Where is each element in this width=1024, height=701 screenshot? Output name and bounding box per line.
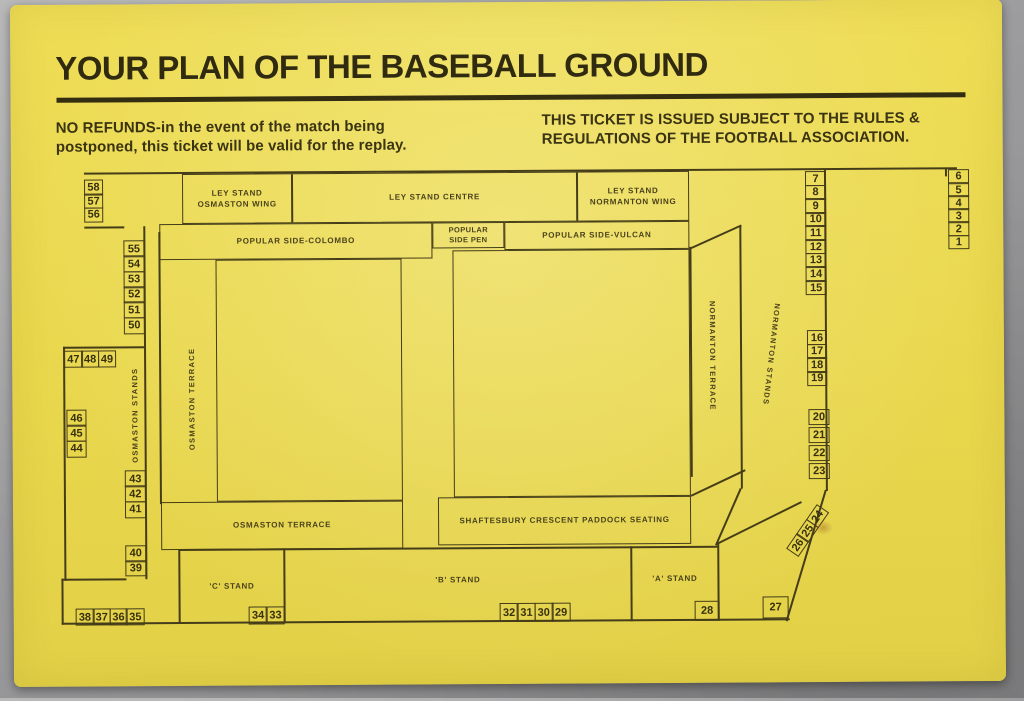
label-ley-stand-centre: LEY STAND CENTRE	[292, 172, 577, 224]
gate-27: 27	[763, 596, 789, 618]
page-title: YOUR PLAN OF THE BASEBALL GROUND	[55, 46, 708, 88]
gates-40-39: 4039	[125, 545, 146, 576]
ticket-card: YOUR PLAN OF THE BASEBALL GROUND NO REFU…	[10, 0, 1006, 687]
gate-21: 21	[809, 427, 830, 443]
gate-22: 22	[809, 445, 830, 461]
gates-46-44: 464544	[66, 410, 86, 458]
gate-47: 47	[64, 351, 83, 368]
boundary-line	[61, 578, 126, 580]
pitch-right	[452, 249, 691, 497]
label-popular-side-vulcan: POPULAR SIDE-VULCAN	[504, 221, 689, 250]
gate-37: 37	[92, 608, 111, 625]
label-popular-side-colombo: POPULAR SIDE-COLOMBO	[159, 222, 432, 260]
gate-33: 33	[266, 606, 285, 624]
gates-20-23: 20212223	[808, 409, 829, 479]
gates-55-50: 555453525150	[123, 240, 145, 334]
boundary-line	[61, 579, 63, 625]
gate-31: 31	[517, 603, 536, 622]
boundary-line	[158, 232, 161, 504]
title-rule	[56, 92, 965, 103]
gate-38: 38	[76, 609, 95, 626]
boundary-line	[84, 226, 124, 228]
gate-23: 23	[809, 463, 830, 479]
stands-band-bottom-line	[62, 618, 790, 624]
label-osmaston-terrace-side: OSMASTON TERRACE	[185, 344, 198, 454]
paper-stain	[813, 520, 833, 535]
gates-32-29: 32313029	[500, 603, 571, 622]
gate-48: 48	[81, 350, 100, 367]
gate-19: 19	[807, 371, 827, 386]
gate-56: 56	[84, 207, 103, 223]
gate-34: 34	[249, 606, 268, 624]
photo-background: { "header": { "title": "YOUR PLAN OF THE…	[0, 0, 1024, 698]
gate-1: 1	[948, 235, 969, 250]
boundary-diagonal	[717, 501, 802, 544]
gate-29: 29	[552, 603, 571, 622]
gate-20: 20	[808, 409, 829, 425]
boundary-line	[63, 347, 66, 581]
boundary-line	[63, 346, 145, 348]
gate-44: 44	[67, 440, 87, 457]
gates-43-41: 434241	[125, 470, 146, 518]
refund-notice: NO REFUNDS-in the event of the match bei…	[56, 116, 516, 157]
boundary-line	[739, 226, 742, 489]
gate-50: 50	[124, 317, 145, 334]
label-ley-stand-osmaston-wing: LEY STAND OSMASTON WING	[182, 173, 292, 224]
label-normanton-terrace: NORMANTON TERRACE	[707, 296, 720, 416]
boundary-diagonal	[689, 224, 742, 249]
gates-6-1: 654321	[948, 169, 969, 249]
gates-58-56: 585756	[84, 179, 103, 222]
gate-32: 32	[500, 603, 519, 622]
label-b-stand: 'B' STAND	[284, 547, 631, 613]
gate-28: 28	[695, 601, 720, 621]
gates-38-35: 38373635	[76, 608, 145, 625]
gate-41: 41	[125, 501, 146, 518]
gate-35: 35	[126, 608, 145, 625]
label-ley-stand-normanton-wing: LEY STAND NORMANTON WING	[577, 171, 689, 222]
pitch-left	[215, 259, 402, 502]
gates-47-49: 474849	[64, 350, 116, 367]
label-shaftesbury-paddock: SHAFTESBURY CRESCENT PADDOCK SEATING	[438, 496, 691, 546]
boundary-line	[945, 168, 947, 176]
rules-notice: THIS TICKET IS ISSUED SUBJECT TO THE RUL…	[542, 108, 1002, 149]
gate-39: 39	[125, 560, 146, 577]
label-popular-side-pen: POPULAR SIDE PEN	[432, 222, 504, 248]
gate-28: 28	[695, 601, 720, 621]
ground-plan: YOUR PLAN OF THE BASEBALL GROUND NO REFU…	[0, 0, 1024, 701]
gates-7-15: 789101112131415	[805, 171, 827, 295]
gate-27: 27	[763, 596, 789, 618]
gate-36: 36	[109, 608, 128, 625]
label-osmaston-stands: OSMASTON STANDS	[128, 360, 141, 470]
gate-49: 49	[98, 350, 117, 367]
label-osmaston-terrace-end: OSMASTON TERRACE	[161, 501, 403, 550]
gates-34-33: 3433	[249, 606, 285, 624]
label-normanton-stands: NORMANTON STANDS	[760, 299, 785, 410]
gates-16-19: 16171819	[807, 330, 827, 386]
gate-30: 30	[534, 603, 553, 622]
gate-15: 15	[806, 280, 827, 295]
